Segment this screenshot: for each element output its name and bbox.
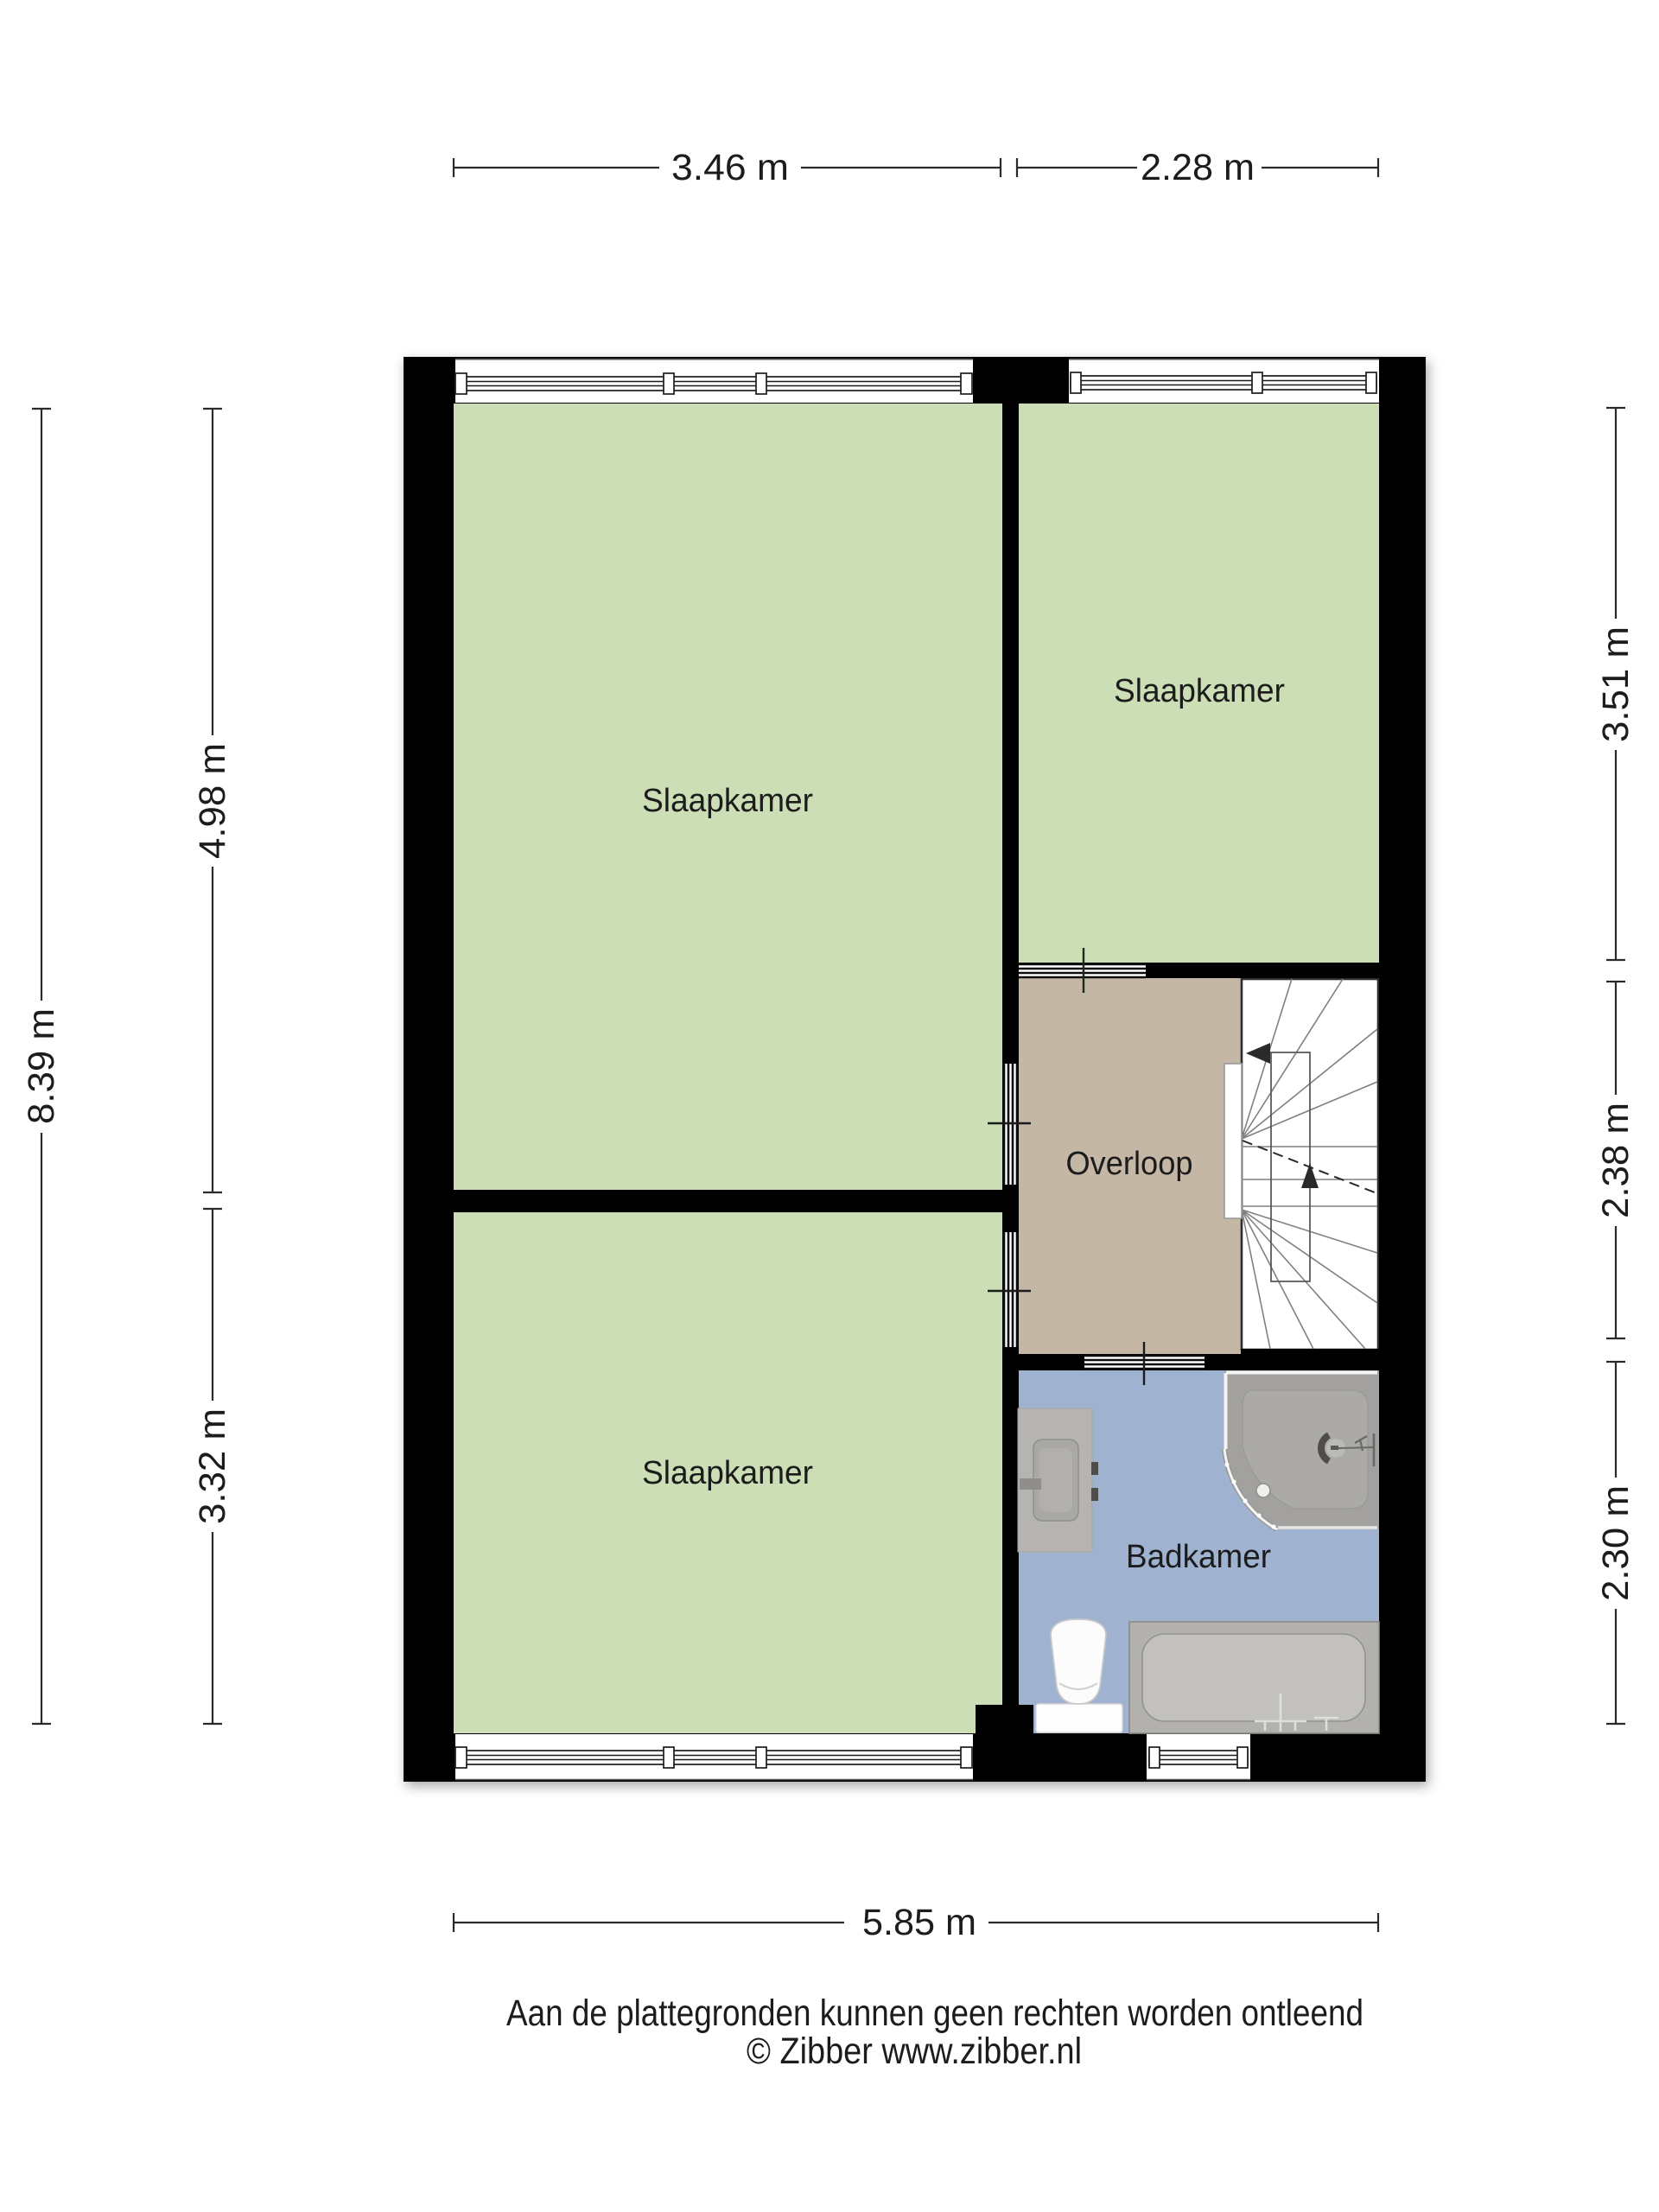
svg-text:Slaapkamer: Slaapkamer: [1114, 673, 1285, 709]
svg-text:Overloop: Overloop: [1066, 1146, 1193, 1182]
svg-text:4.98 m: 4.98 m: [192, 743, 233, 859]
svg-text:Badkamer: Badkamer: [1126, 1539, 1271, 1575]
svg-text:2.30 m: 2.30 m: [1595, 1485, 1637, 1601]
svg-text:2.28 m: 2.28 m: [1141, 147, 1255, 188]
svg-text:2.38 m: 2.38 m: [1595, 1103, 1637, 1218]
svg-text:© Zibber www.zibber.nl: © Zibber www.zibber.nl: [747, 2031, 1082, 2072]
svg-text:3.32 m: 3.32 m: [192, 1408, 233, 1524]
svg-text:Aan de plattegronden kunnen ge: Aan de plattegronden kunnen geen rechten…: [506, 1993, 1363, 2034]
svg-text:3.51 m: 3.51 m: [1595, 626, 1637, 742]
svg-text:3.46 m: 3.46 m: [671, 147, 789, 188]
svg-text:Slaapkamer: Slaapkamer: [642, 1455, 813, 1491]
svg-text:5.85 m: 5.85 m: [862, 1902, 976, 1943]
svg-text:Slaapkamer: Slaapkamer: [642, 783, 813, 819]
svg-text:8.39 m: 8.39 m: [21, 1008, 62, 1124]
